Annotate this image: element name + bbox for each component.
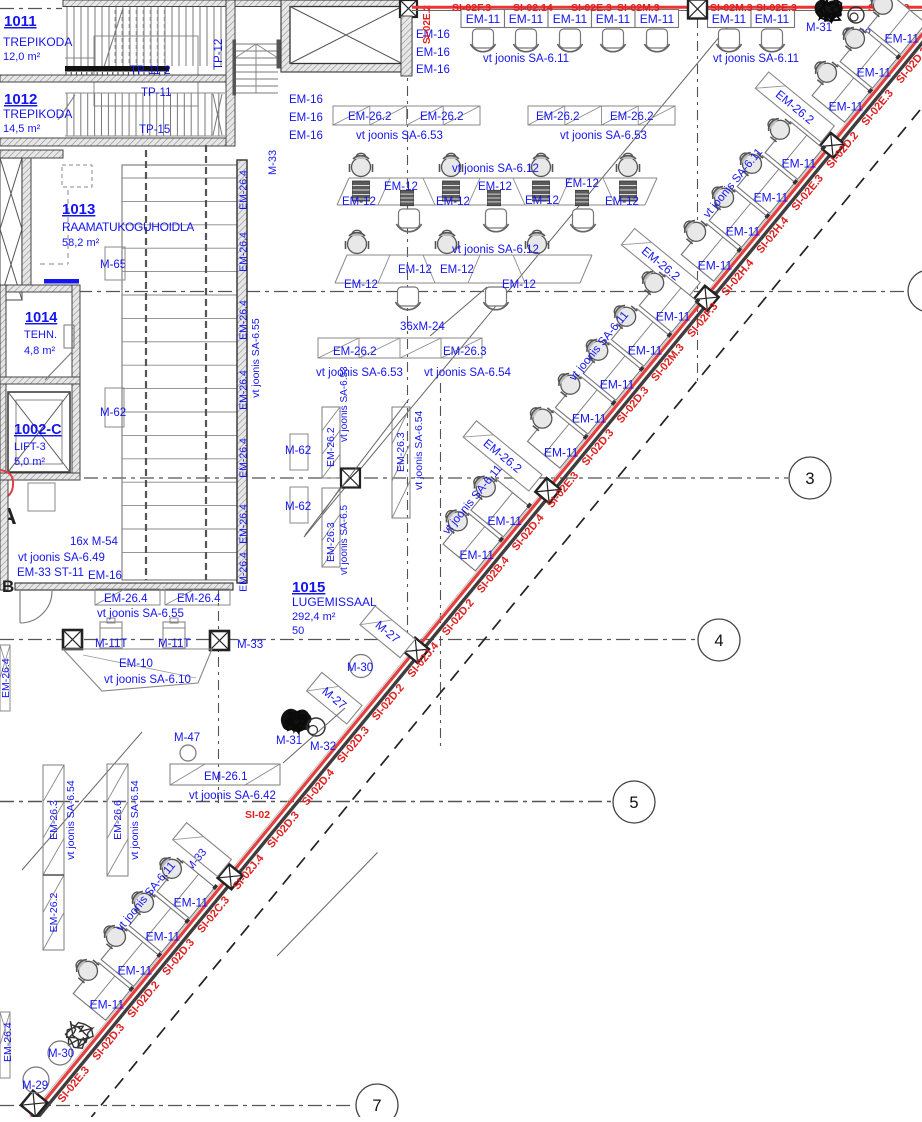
svg-text:1013: 1013 (62, 201, 95, 218)
svg-text:vt joonis SA-6.53: vt joonis SA-6.53 (316, 367, 403, 379)
svg-text:SI-02M.3: SI-02M.3 (710, 2, 753, 14)
svg-text:SI-02F.3: SI-02F.3 (452, 2, 491, 14)
svg-text:14,5 m²: 14,5 m² (3, 123, 41, 135)
svg-text:1014: 1014 (25, 310, 57, 326)
svg-text:5: 5 (629, 794, 638, 812)
svg-text:1002-C: 1002-C (14, 422, 62, 438)
svg-text:EM-16: EM-16 (416, 47, 450, 59)
svg-text:EM-26.3: EM-26.3 (48, 800, 60, 840)
svg-text:vt joonis SA-6.5: vt joonis SA-6.5 (339, 505, 350, 575)
svg-text:EM-26.2: EM-26.2 (610, 111, 653, 123)
svg-text:EM-16: EM-16 (289, 94, 323, 106)
svg-text:vt joonis SA-6.53: vt joonis SA-6.53 (356, 130, 443, 142)
svg-text:4,8 m²: 4,8 m² (24, 345, 56, 357)
svg-text:EM-26.4: EM-26.4 (0, 658, 12, 698)
svg-text:EM-26.4: EM-26.4 (238, 438, 250, 478)
svg-text:EM-11: EM-11 (640, 12, 675, 26)
svg-text:EM-11: EM-11 (754, 191, 789, 205)
svg-text:EM-26.4: EM-26.4 (2, 1022, 14, 1062)
svg-text:EM-16: EM-16 (289, 112, 323, 124)
svg-text:EM-12: EM-12 (398, 264, 432, 276)
svg-text:EM-26.2: EM-26.2 (348, 111, 391, 123)
svg-text:M-11T: M-11T (158, 638, 190, 650)
svg-text:50: 50 (292, 625, 304, 637)
svg-text:EM-16: EM-16 (289, 130, 323, 142)
svg-text:EM-26.6: EM-26.6 (112, 800, 124, 840)
svg-text:vt joonis SA-6.54: vt joonis SA-6.54 (129, 780, 141, 860)
svg-text:EM-26.2: EM-26.2 (420, 111, 463, 123)
svg-text:EM-11: EM-11 (553, 12, 588, 26)
svg-text:7: 7 (372, 1097, 381, 1115)
svg-text:TP-11-2: TP-11-2 (130, 65, 171, 77)
svg-text:vt joonis SA-6.54: vt joonis SA-6.54 (65, 780, 77, 860)
svg-text:M-62: M-62 (285, 501, 311, 513)
svg-text:SI-02: SI-02 (245, 809, 270, 821)
svg-text:EM-12: EM-12 (384, 181, 418, 193)
svg-text:TP-12: TP-12 (213, 39, 225, 70)
svg-text:EM-26.4: EM-26.4 (104, 593, 148, 605)
svg-text:EM-26.3: EM-26.3 (395, 432, 407, 472)
svg-text:EM-11: EM-11 (544, 445, 579, 459)
svg-text:EM-11: EM-11 (600, 377, 635, 391)
svg-text:1011: 1011 (4, 13, 37, 30)
svg-text:EM-11: EM-11 (755, 12, 790, 26)
svg-text:3: 3 (805, 470, 814, 488)
svg-text:EM-16: EM-16 (88, 570, 122, 582)
svg-text:EM-11: EM-11 (656, 309, 691, 323)
svg-text:EM-26.4: EM-26.4 (238, 170, 250, 210)
svg-text:EM-12: EM-12 (436, 196, 470, 208)
svg-text:16x M-54: 16x M-54 (70, 536, 119, 548)
svg-text:vt joonis SA-6.10: vt joonis SA-6.10 (104, 674, 191, 686)
svg-text:vt joonis SA-6.11: vt joonis SA-6.11 (713, 53, 799, 65)
svg-text:EM-11: EM-11 (885, 32, 920, 46)
svg-text:EM-26.2: EM-26.2 (333, 346, 376, 358)
svg-text:EM-11: EM-11 (90, 998, 125, 1012)
svg-text:M-33: M-33 (267, 150, 279, 175)
svg-text:B: B (2, 577, 14, 596)
svg-text:EM-26.3: EM-26.3 (443, 346, 486, 358)
svg-text:EM-26.1: EM-26.1 (204, 771, 247, 783)
svg-text:EM-11: EM-11 (146, 930, 181, 944)
svg-text:EM-26.2: EM-26.2 (536, 111, 579, 123)
svg-text:EM-26.2: EM-26.2 (48, 893, 60, 933)
svg-text:EM-26.4: EM-26.4 (238, 370, 250, 410)
svg-text:EM-11: EM-11 (466, 12, 501, 26)
svg-text:EM-12: EM-12 (525, 195, 559, 207)
svg-text:vt joonis SA-6.42: vt joonis SA-6.42 (189, 790, 276, 802)
svg-text:vt joonis SA-6.54: vt joonis SA-6.54 (413, 410, 425, 490)
svg-text:TREPIKODA: TREPIKODA (3, 35, 72, 49)
svg-text:SI-02.14: SI-02.14 (513, 2, 553, 14)
svg-text:EM-26.4: EM-26.4 (238, 300, 250, 340)
svg-text:EM-11: EM-11 (174, 896, 209, 910)
svg-text:vt joonis SA-6.55: vt joonis SA-6.55 (250, 318, 262, 398)
svg-text:EM-11: EM-11 (509, 12, 544, 26)
svg-text:1012: 1012 (4, 91, 37, 108)
svg-text:EM-11: EM-11 (782, 157, 817, 171)
svg-text:RAAMATUKOGUHOIDLA: RAAMATUKOGUHOIDLA (62, 220, 194, 234)
svg-text:EM-11: EM-11 (829, 99, 864, 113)
svg-text:EM-12: EM-12 (565, 178, 599, 190)
svg-text:TP-15: TP-15 (139, 124, 170, 136)
svg-text:vt joonis SA-6.11: vt joonis SA-6.11 (483, 53, 569, 65)
svg-text:EM-11: EM-11 (596, 12, 631, 26)
svg-text:M-65: M-65 (100, 259, 126, 271)
svg-text:EM-16: EM-16 (416, 64, 450, 76)
svg-text:EM-26.4: EM-26.4 (177, 593, 221, 605)
svg-text:EM-12: EM-12 (502, 279, 536, 291)
svg-text:EM-11: EM-11 (857, 65, 892, 79)
svg-text:EM-12: EM-12 (478, 181, 512, 193)
svg-text:vt joonis SA-6.53: vt joonis SA-6.53 (560, 130, 647, 142)
svg-text:M-30: M-30 (48, 1048, 74, 1060)
svg-text:M-32: M-32 (310, 741, 336, 753)
svg-text:M-47: M-47 (174, 732, 200, 744)
svg-text:EM-11: EM-11 (487, 514, 522, 528)
svg-text:M-11T: M-11T (95, 638, 127, 650)
svg-text:LUGEMISSAAL: LUGEMISSAAL (292, 595, 377, 609)
svg-text:TREPIKODA: TREPIKODA (3, 107, 72, 121)
svg-text:LIFT-3: LIFT-3 (14, 441, 46, 453)
svg-text:EM-12: EM-12 (440, 264, 474, 276)
svg-text:M-62: M-62 (285, 445, 311, 457)
svg-text:EM-11: EM-11 (118, 964, 153, 978)
svg-text:M-31: M-31 (276, 735, 302, 747)
svg-text:vt joonis SA-6.54: vt joonis SA-6.54 (424, 367, 512, 379)
svg-text:EM-11: EM-11 (572, 411, 607, 425)
svg-text:EM-33 ST-11: EM-33 ST-11 (17, 567, 84, 579)
svg-text:M-33: M-33 (237, 639, 263, 651)
svg-text:SI-02M.3: SI-02M.3 (617, 2, 660, 14)
svg-text:EM-26.4: EM-26.4 (238, 552, 250, 592)
svg-text:EM-26.4: EM-26.4 (238, 504, 250, 544)
svg-text:292,4 m²: 292,4 m² (292, 611, 336, 623)
svg-text:4: 4 (714, 632, 723, 650)
svg-text:EM-11: EM-11 (628, 343, 663, 357)
svg-text:vt joonis SA-6.49: vt joonis SA-6.49 (18, 552, 105, 564)
svg-text:EM-11: EM-11 (698, 259, 733, 273)
svg-text:EM-26.4: EM-26.4 (238, 232, 250, 272)
svg-text:36xM-24: 36xM-24 (400, 321, 445, 333)
svg-text:M-30: M-30 (347, 662, 373, 674)
svg-text:TP-11: TP-11 (141, 87, 171, 99)
svg-text:EM-12: EM-12 (342, 196, 376, 208)
svg-text:EM-10: EM-10 (119, 658, 153, 670)
svg-text:M-31: M-31 (806, 22, 832, 34)
svg-text:vt joonis SA-6.12: vt joonis SA-6.12 (452, 163, 539, 175)
svg-text:TEHN.: TEHN. (24, 329, 57, 341)
svg-text:EM-11: EM-11 (712, 12, 747, 26)
svg-text:EM-12: EM-12 (344, 279, 378, 291)
svg-text:SI-02E.3: SI-02E.3 (756, 2, 797, 14)
svg-text:1015: 1015 (292, 579, 325, 596)
svg-text:EM-12: EM-12 (605, 196, 639, 208)
svg-text:EM-26.2: EM-26.2 (325, 427, 337, 467)
svg-text:EM-26.3: EM-26.3 (325, 522, 337, 562)
svg-text:EM-11: EM-11 (459, 548, 494, 562)
svg-text:vt joonis SA-6.12: vt joonis SA-6.12 (452, 244, 539, 256)
svg-text:EM-11: EM-11 (726, 225, 761, 239)
svg-text:M-62: M-62 (100, 407, 126, 419)
svg-text:12,0 m²: 12,0 m² (3, 51, 41, 63)
svg-text:SI-02E.3: SI-02E.3 (571, 2, 612, 14)
svg-text:M-29: M-29 (22, 1080, 48, 1092)
svg-text:5,0 m²: 5,0 m² (14, 456, 46, 468)
svg-text:58,2 m²: 58,2 m² (62, 237, 100, 249)
